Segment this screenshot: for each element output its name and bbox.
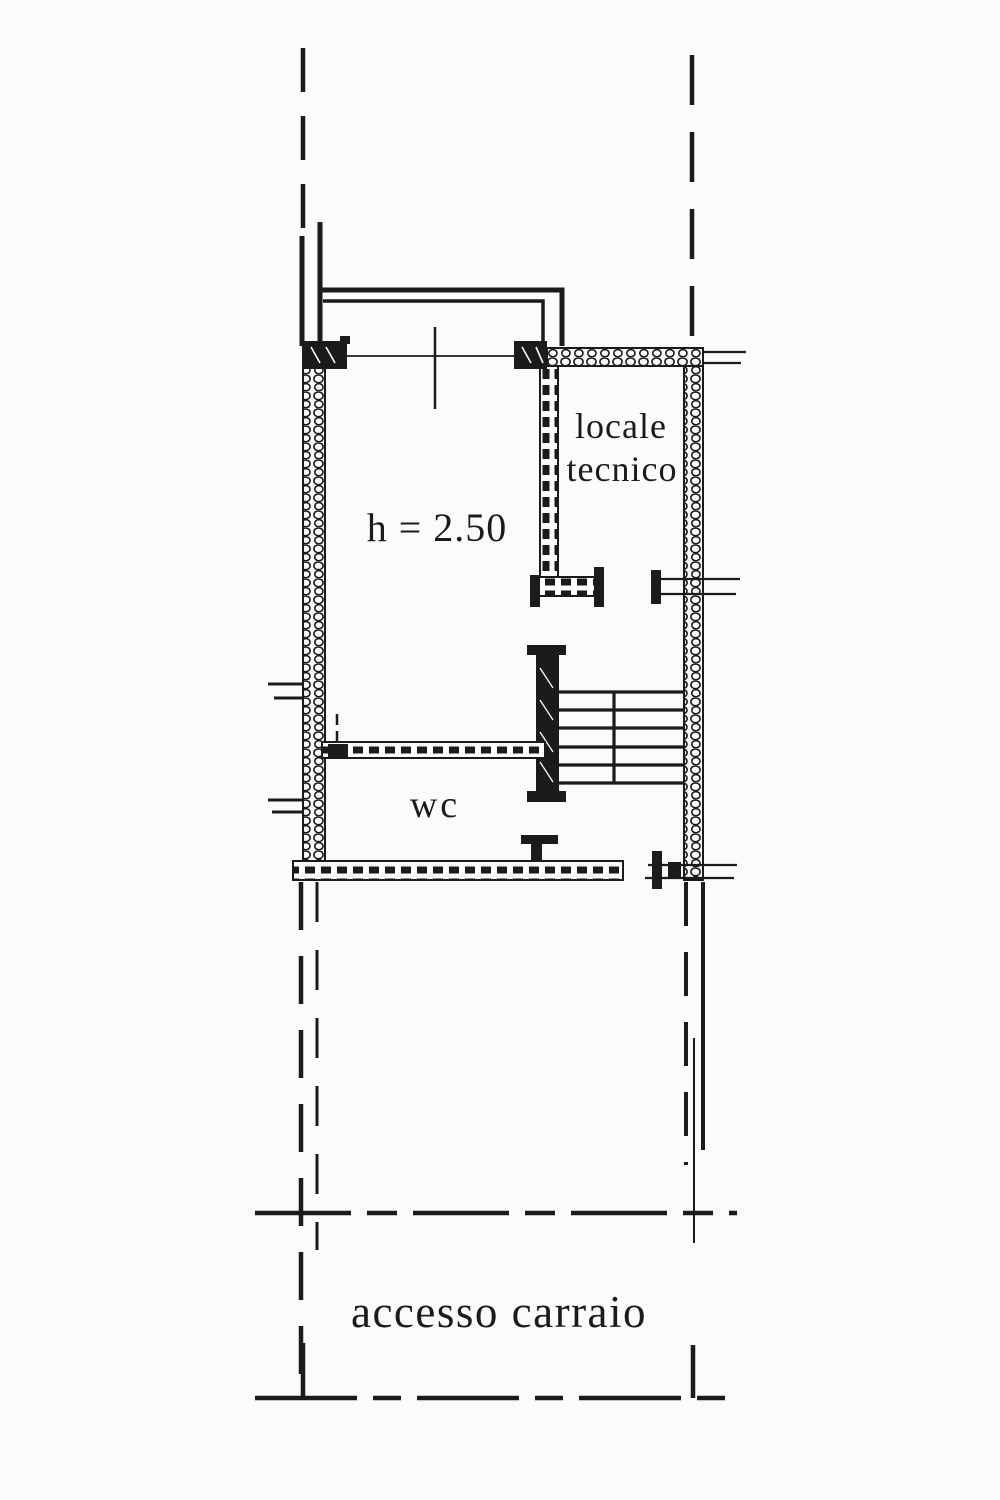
technical-room-bottom-stub [538,577,596,596]
bottom-right-door-jamb [652,851,662,889]
bottom-right-wall-block [668,862,681,879]
technical-room-top-wall [547,348,703,366]
main-room-height-label: h = 2.50 [367,505,508,550]
technical-room-label-line2: tecnico [567,449,678,489]
stub-corner-cap [530,575,540,607]
right-perimeter-wall [684,348,703,880]
stub-end-cap [594,567,604,607]
wc-partition-end-block [328,744,348,758]
floor-plan-sheet: locale tecnico h = 2.50 wc accesso carra… [0,0,1000,1500]
entrance-jamb-right [514,341,547,369]
wc-partition-wall [322,742,545,758]
technical-room-door-jamb [651,570,661,604]
technical-room-label-line1: locale [575,406,667,446]
floor-plan-svg: locale tecnico h = 2.50 wc accesso carra… [0,0,1000,1500]
left-perimeter-wall [303,345,325,880]
driveway-label: accesso carraio [351,1287,647,1337]
wc-label: wc [410,784,460,826]
bottom-wall [293,861,623,880]
technical-room-left-wall [540,366,558,578]
